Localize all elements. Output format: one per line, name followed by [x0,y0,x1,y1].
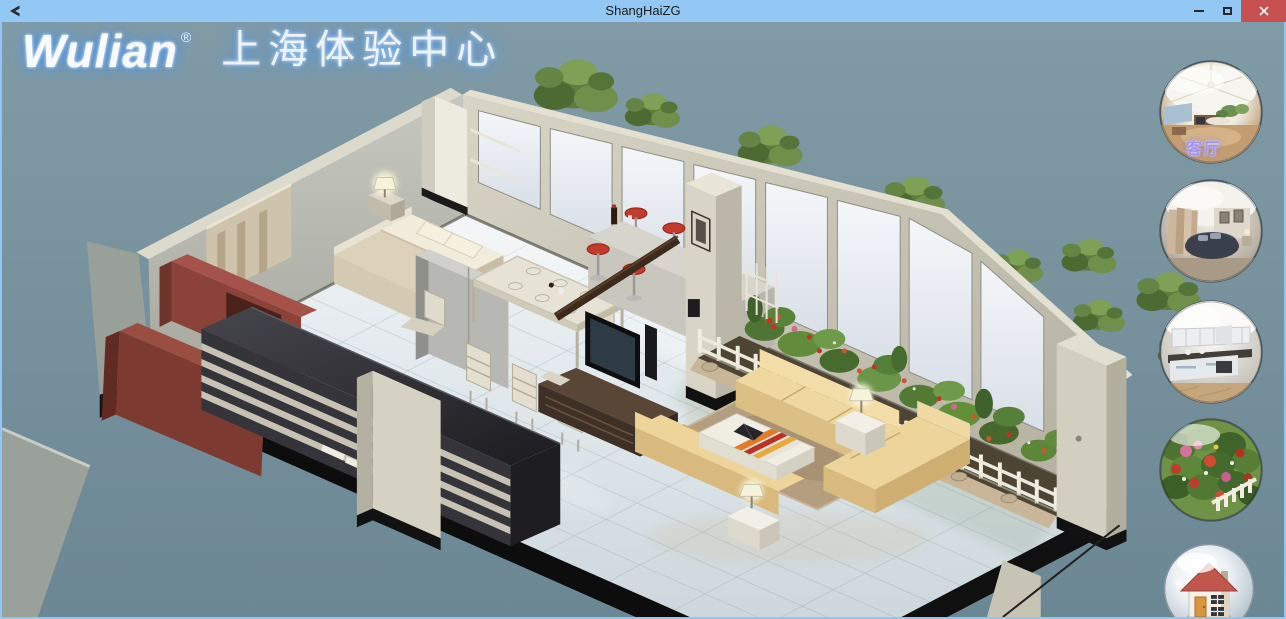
pillar-right [1057,335,1127,550]
speaker [645,324,657,381]
bedroom-panorama-icon [1158,178,1264,284]
minimize-button[interactable] [1185,0,1213,22]
table-lamp [374,177,396,189]
close-icon [1259,6,1269,16]
maximize-icon [1223,7,1232,15]
wine-bottle [611,207,617,224]
minimize-icon [1194,10,1204,12]
nav-room-kitchen-panorama[interactable] [1158,299,1264,405]
scene-3d-view[interactable] [2,22,1284,617]
nav-room-garden-panorama[interactable] [1158,417,1264,523]
nav-room-living-panorama[interactable]: 客厅 [1158,59,1264,165]
maximize-button[interactable] [1213,0,1241,22]
window-controls [1185,0,1286,22]
titlebar: ShangHaiZG [0,0,1286,22]
app-window: ShangHaiZG [0,0,1286,619]
close-button[interactable] [1241,0,1286,22]
garden-panorama-icon [1158,417,1264,523]
nav-home-button[interactable] [1163,543,1255,619]
living-room-panorama-icon [1158,59,1264,165]
wall-panel [688,299,700,317]
nav-room-bedroom-panorama[interactable] [1158,178,1264,284]
house-icon [1163,543,1255,619]
window-title: ShangHaiZG [0,0,1286,22]
kitchen-panorama-icon [1158,299,1264,405]
unity-logo-icon [6,3,22,19]
viewport: Wulian ® 上海体验中心 [0,22,1286,619]
